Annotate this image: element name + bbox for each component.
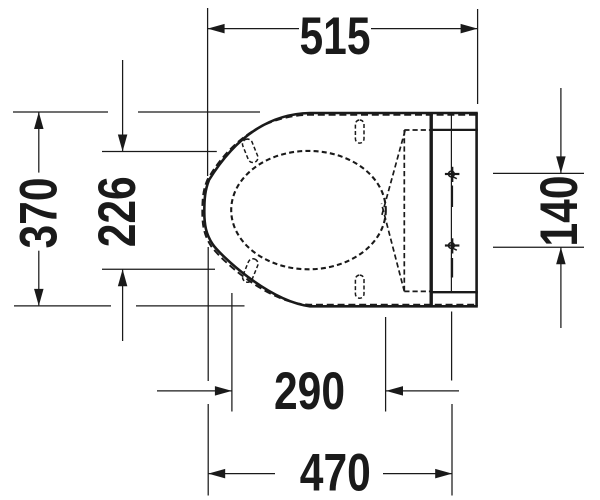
svg-text:370: 370 xyxy=(10,178,69,249)
svg-text:140: 140 xyxy=(530,176,589,247)
svg-text:470: 470 xyxy=(300,444,371,500)
svg-text:515: 515 xyxy=(300,7,371,66)
svg-text:226: 226 xyxy=(88,176,147,247)
svg-text:290: 290 xyxy=(274,362,345,421)
